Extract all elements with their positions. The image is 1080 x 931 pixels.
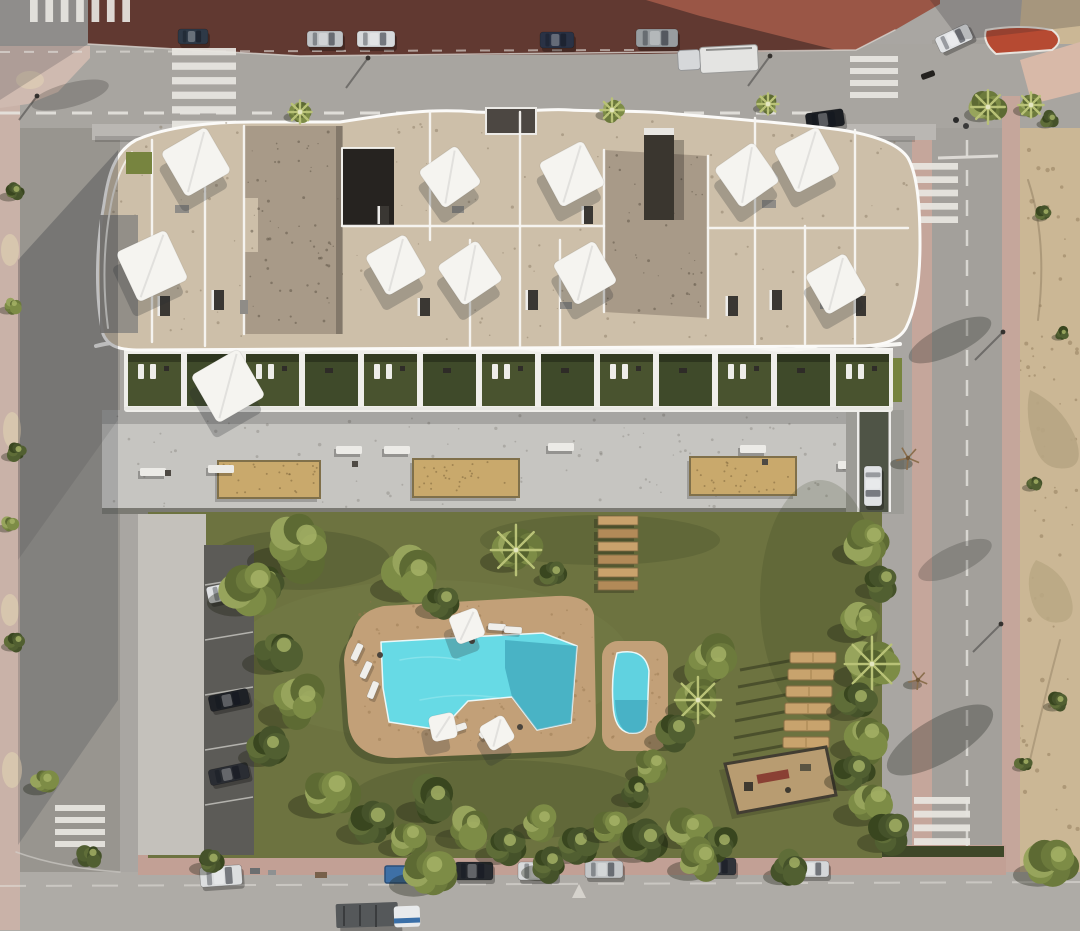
r <box>315 872 327 878</box>
skylight <box>526 290 539 310</box>
west-sidewalk <box>0 96 20 930</box>
car <box>455 862 495 884</box>
bench <box>546 443 574 454</box>
e <box>1 594 19 626</box>
skylight <box>770 290 783 310</box>
car <box>357 31 397 51</box>
truck-cab <box>394 906 421 928</box>
r <box>744 782 753 791</box>
bench <box>738 445 766 456</box>
stepping-plank <box>594 516 638 528</box>
tree <box>391 823 428 856</box>
skylight <box>418 298 431 316</box>
r <box>352 461 358 467</box>
e <box>517 724 523 730</box>
e <box>377 652 383 658</box>
east-sidewalk-outer <box>1002 96 1020 872</box>
r <box>250 868 260 874</box>
car <box>636 29 680 51</box>
scene-canvas <box>0 0 1080 931</box>
bench <box>138 468 166 479</box>
gravel-roof-west <box>244 126 342 334</box>
r <box>762 459 768 465</box>
skylight <box>726 296 739 316</box>
car <box>307 31 345 51</box>
palm-tree <box>845 637 901 692</box>
stepping-plank <box>594 581 638 593</box>
stair-core <box>644 132 674 220</box>
stepping-plank <box>594 555 638 567</box>
planter <box>410 459 519 501</box>
e <box>1 234 19 266</box>
car <box>540 32 576 52</box>
r <box>644 128 674 135</box>
stop-line <box>938 156 998 158</box>
skylight <box>212 290 225 310</box>
planter <box>687 457 796 499</box>
r <box>165 470 171 476</box>
aerial-render: Aerial architectural render of a residen… <box>0 0 1080 931</box>
stepping-plank <box>594 542 638 554</box>
r <box>240 300 248 314</box>
stepping-plank <box>594 529 638 541</box>
skylight <box>378 206 390 224</box>
e <box>785 787 791 793</box>
r <box>394 918 420 924</box>
palm-tree <box>288 100 311 123</box>
green-roof-west <box>126 152 152 174</box>
palm-tree <box>1018 92 1043 117</box>
car <box>585 861 625 882</box>
r <box>674 140 684 220</box>
pedestrian <box>963 123 969 129</box>
bench <box>382 446 410 457</box>
truck-bed <box>336 902 399 928</box>
r <box>268 870 276 875</box>
pedestrian <box>953 117 959 123</box>
bench <box>334 446 362 457</box>
r <box>800 764 811 771</box>
layer-building <box>95 108 920 514</box>
stepping-plank <box>594 568 638 580</box>
sun-lounger <box>502 626 523 637</box>
parking-path <box>138 514 206 855</box>
bench <box>206 465 234 476</box>
car <box>864 466 884 510</box>
truck-cab <box>677 49 700 70</box>
car <box>178 29 210 48</box>
palm-tree <box>756 94 778 115</box>
roof-bulkhead <box>486 108 536 134</box>
